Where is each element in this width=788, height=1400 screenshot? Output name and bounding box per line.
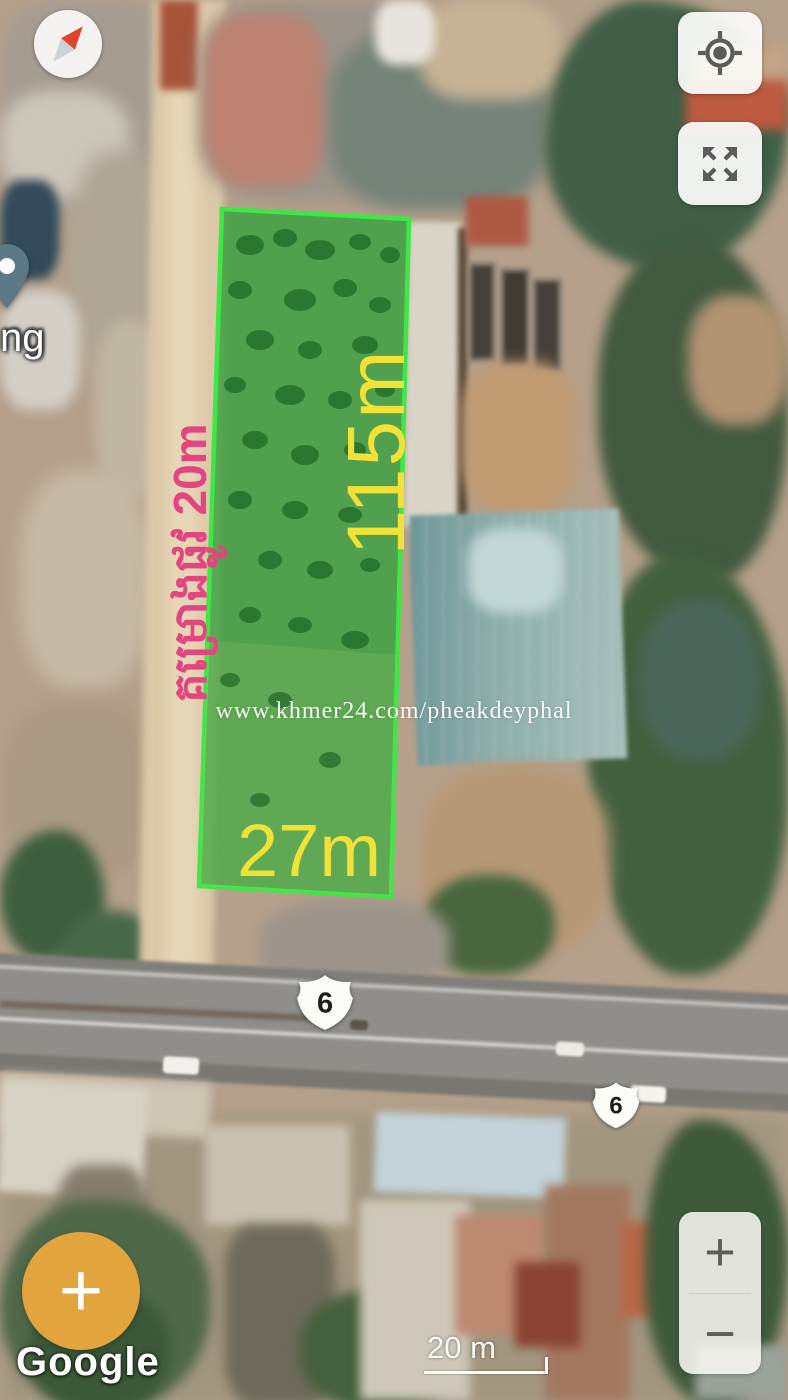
svg-text:6: 6 xyxy=(609,1093,622,1120)
my-location-button[interactable] xyxy=(678,12,762,94)
zoom-in-button[interactable]: + xyxy=(679,1212,761,1293)
road-project-label: គម្រោងផ្លូវ 20m xyxy=(154,373,226,753)
crosshair-target-icon xyxy=(697,30,743,76)
plot-frontage-label: 27m xyxy=(209,811,409,891)
svg-text:6: 6 xyxy=(317,987,333,1019)
compass-needle-icon xyxy=(46,21,89,68)
google-logo: Google xyxy=(16,1340,160,1385)
expand-arrows-icon xyxy=(698,142,742,186)
zoom-out-button[interactable]: − xyxy=(679,1294,761,1375)
partial-place-label: ng xyxy=(0,316,45,361)
watermark: www.khmer24.com/pheakdeyphal xyxy=(0,698,788,725)
scale-bar-tick xyxy=(545,1357,548,1374)
plot-depth-label: 115m xyxy=(337,327,417,577)
compass-button[interactable] xyxy=(34,10,102,78)
add-listing-button[interactable]: + xyxy=(22,1232,140,1350)
zoom-control: + − xyxy=(679,1212,761,1374)
map-pin[interactable] xyxy=(0,243,30,309)
route-shield-6: 6 xyxy=(294,972,356,1032)
map-view: ng 6 6 គម្រោងផ្លូវ 20m 115m 27m www.khme… xyxy=(0,0,788,1400)
scale-bar-line xyxy=(424,1371,548,1374)
fullscreen-button[interactable] xyxy=(678,122,762,205)
route-shield-6: 6 xyxy=(590,1080,642,1130)
scale-bar-label: 20 m xyxy=(427,1330,496,1366)
